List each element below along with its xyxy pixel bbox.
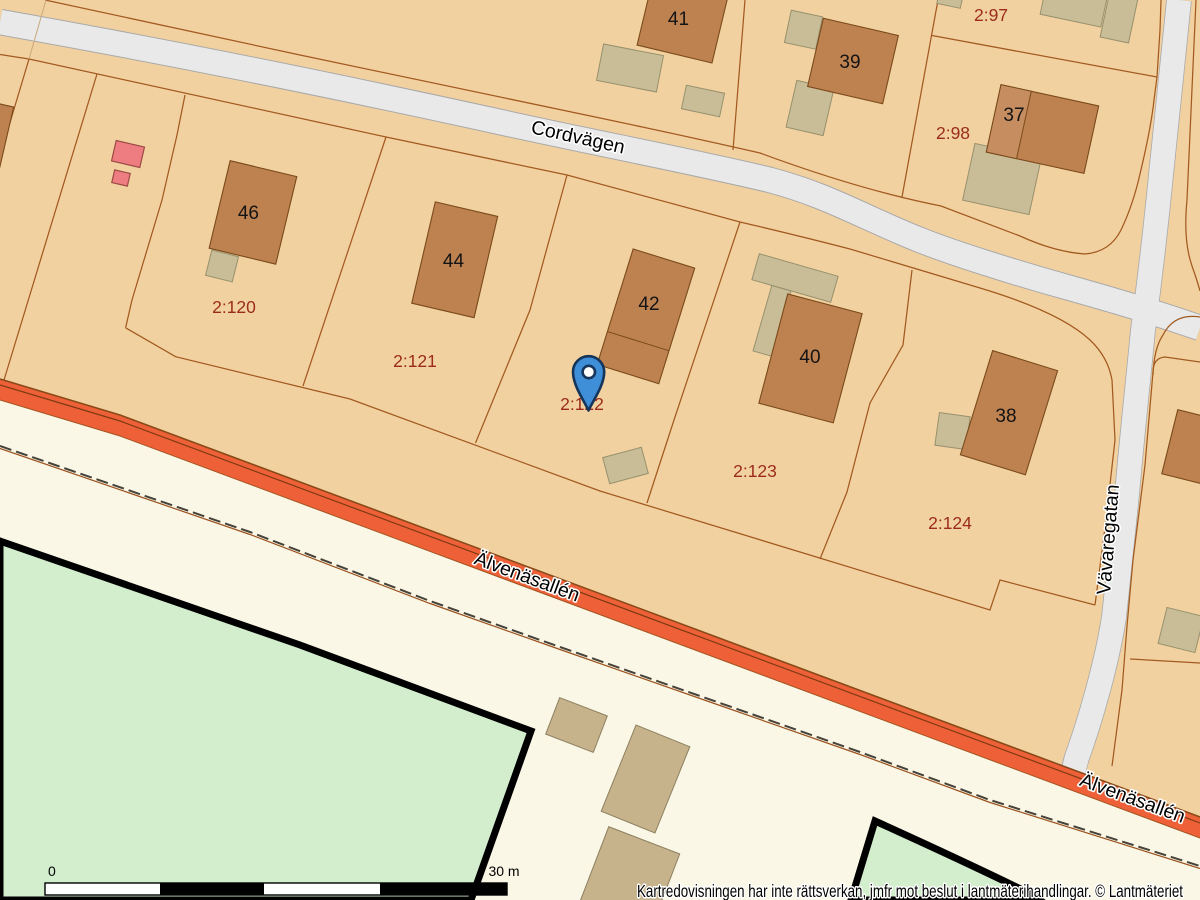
svg-text:2:98: 2:98 bbox=[936, 123, 970, 143]
svg-text:38: 38 bbox=[995, 406, 1016, 427]
svg-text:2:123: 2:123 bbox=[733, 461, 777, 481]
svg-text:Kartredovisningen har inte rät: Kartredovisningen har inte rättsverkan, … bbox=[637, 881, 1183, 900]
svg-text:37: 37 bbox=[1003, 105, 1024, 126]
svg-text:0: 0 bbox=[48, 863, 56, 879]
svg-text:2:97: 2:97 bbox=[974, 5, 1008, 25]
svg-text:39: 39 bbox=[839, 52, 860, 73]
svg-text:2:121: 2:121 bbox=[393, 351, 437, 371]
svg-text:42: 42 bbox=[638, 294, 659, 315]
svg-text:46: 46 bbox=[238, 203, 259, 224]
svg-text:44: 44 bbox=[443, 251, 465, 272]
svg-text:40: 40 bbox=[799, 347, 820, 368]
svg-text:30 m: 30 m bbox=[488, 863, 519, 879]
svg-text:2:124: 2:124 bbox=[928, 513, 972, 533]
svg-text:41: 41 bbox=[668, 9, 689, 30]
svg-text:2:120: 2:120 bbox=[212, 297, 256, 317]
